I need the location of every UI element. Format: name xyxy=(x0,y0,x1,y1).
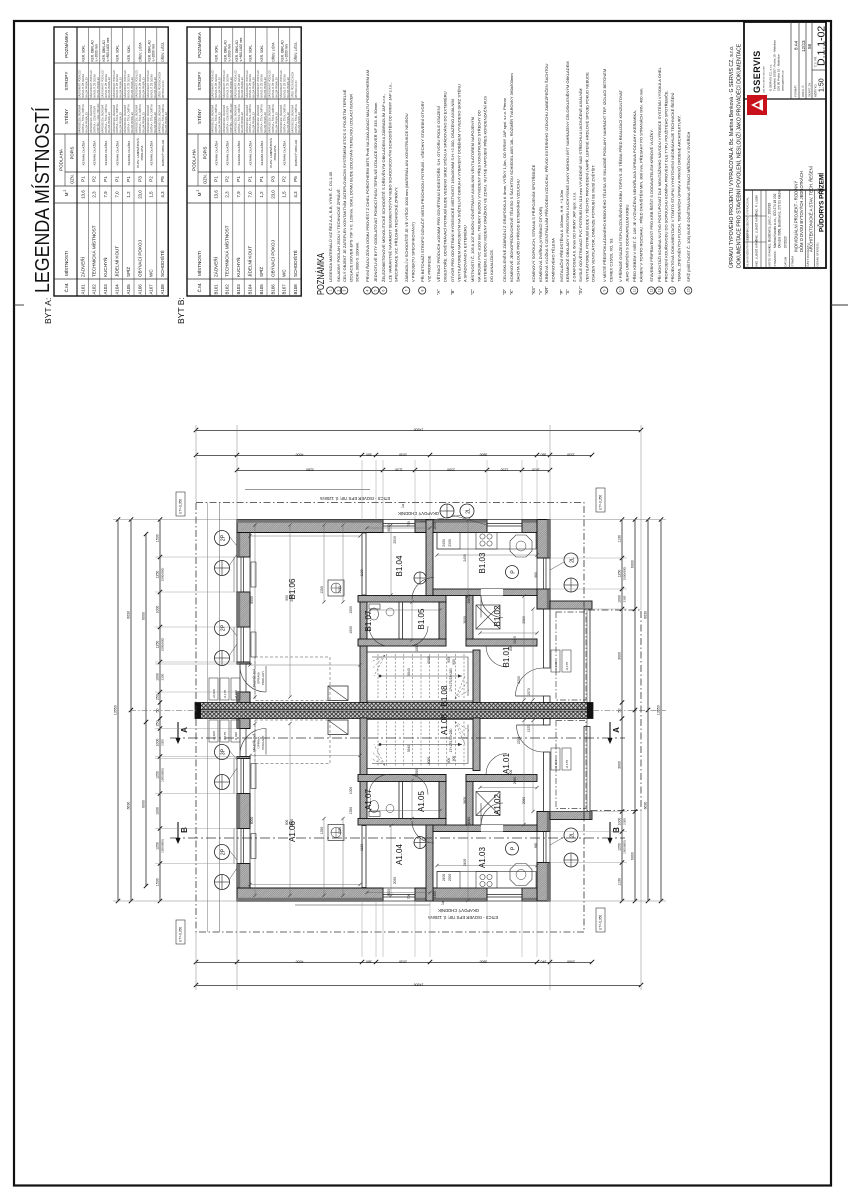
svg-text:A108: A108 xyxy=(160,284,165,295)
svg-text:B1.07: B1.07 xyxy=(364,610,373,631)
svg-text:A: A xyxy=(180,727,189,733)
svg-text:ZÁDVEŘÍ: ZÁDVEŘÍ xyxy=(78,256,85,277)
svg-text:MALBA PRIMALEX: MALBA PRIMALEX xyxy=(142,77,145,98)
svg-text:STAVEBNÍK:: STAVEBNÍK: xyxy=(773,250,777,266)
svg-text:900: 900 xyxy=(447,758,451,764)
svg-text:1,5: 1,5 xyxy=(282,191,287,198)
svg-text:PODLAHA: PODLAHA xyxy=(59,148,64,171)
svg-text:2400: 2400 xyxy=(442,539,446,547)
svg-text:MALBA PRIMALEX: MALBA PRIMALEX xyxy=(97,77,100,98)
svg-text:B1.04: B1.04 xyxy=(395,555,404,576)
svg-text:NA ROURU PVC ø100 mm. TRUBKY B: NA ROURU PVC ø100 mm. TRUBKY BUDOU VYVED… xyxy=(476,110,481,282)
svg-text:Č.M.: Č.M. xyxy=(196,283,202,293)
svg-text:B1.02: B1.02 xyxy=(493,605,502,626)
svg-text:380: 380 xyxy=(541,453,547,457)
svg-text:2400: 2400 xyxy=(463,554,467,562)
svg-text:11: 11 xyxy=(633,289,637,293)
svg-text:TECHNICKÁ MÍSTNOST: TECHNICKÁ MÍSTNOST xyxy=(224,225,230,277)
svg-text:3600: 3600 xyxy=(463,797,467,805)
svg-text:PODLAHY: PODLAHY xyxy=(261,735,265,749)
svg-text:VENTILÁTOREM. POTRUBÍ BUDE V T: VENTILÁTOREM. POTRUBÍ BUDE V TĚCHTO PROV… xyxy=(584,72,589,282)
svg-text:P2: P2 xyxy=(92,176,97,182)
svg-text:WIPPRO GM 4F: WIPPRO GM 4F xyxy=(162,80,165,98)
svg-text:6000: 6000 xyxy=(250,596,254,604)
svg-text:ARCH. Č.: ARCH. Č. xyxy=(800,85,805,97)
svg-text:2030: 2030 xyxy=(393,536,397,544)
svg-text:1250: 1250 xyxy=(156,842,160,850)
svg-text:ZÁBRADLÍ U SCHODIŠTĚ JE VE VÝŠ: ZÁBRADLÍ U SCHODIŠTĚ JE VE VÝŠCE 1000 mm… xyxy=(404,113,409,282)
svg-text:13,6: 13,6 xyxy=(80,190,85,199)
svg-text:KER. SOKL: KER. SOKL xyxy=(260,44,264,61)
svg-text:5280: 5280 xyxy=(306,468,314,472)
svg-text:STĚNY: STĚNY xyxy=(62,109,69,124)
svg-text:1350: 1350 xyxy=(320,586,324,594)
svg-text:MALBA PRIMALEX: MALBA PRIMALEX xyxy=(154,112,157,133)
svg-text:SVISLÉ ODVĚTRÁVACÍ PVC POTRUBÍ: SVISLÉ ODVĚTRÁVACÍ PVC POTRUBÍ DN 110 mm… xyxy=(578,89,583,282)
svg-text:KERAM. DLAŽBA: KERAM. DLAŽBA xyxy=(103,140,108,166)
svg-text:800: 800 xyxy=(509,645,513,651)
svg-text:9: 9 xyxy=(603,289,607,291)
svg-text:1350: 1350 xyxy=(320,827,324,835)
svg-text:POPIS: POPIS xyxy=(203,146,208,159)
svg-text:4: 4 xyxy=(366,289,370,291)
svg-text:380: 380 xyxy=(366,453,372,457)
svg-text:7,0: 7,0 xyxy=(248,191,253,198)
svg-text:2030: 2030 xyxy=(393,877,397,885)
svg-text:MALBA PRIMALEX: MALBA PRIMALEX xyxy=(275,112,278,133)
svg-text:3: 3 xyxy=(343,289,347,291)
svg-text:ING. LUBOŠ KÁNĚ: ING. LUBOŠ KÁNĚ xyxy=(754,214,759,241)
svg-text:PROJEKTOVÁ DOKUMENTACE V TOMTO: PROJEKTOVÁ DOKUMENTACE V TOMTO STUPNI VY… xyxy=(670,92,675,282)
svg-text:STĚNY: STĚNY xyxy=(195,109,202,124)
svg-text:15: 15 xyxy=(687,289,691,293)
svg-text:KERAM. DLAŽBA: KERAM. DLAŽBA xyxy=(213,140,218,166)
svg-text:B102: B102 xyxy=(225,284,230,295)
svg-text:STAVEBNÍ PŘIPRAVENOST PRO KRB: STAVEBNÍ PŘIPRAVENOST PRO KRB ŘEŠIT S DO… xyxy=(649,129,654,282)
svg-text:OSAZEN VENTILÁTOR, DIMENZE POT: OSAZEN VENTILÁTOR, DIMENZE POTRUBÍ SE MU… xyxy=(591,165,596,283)
svg-text:P1: P1 xyxy=(259,176,264,182)
svg-text:B: B xyxy=(180,827,189,833)
svg-text:KER. SOKL: KER. SOKL xyxy=(127,44,131,61)
svg-text:1: 1 xyxy=(329,289,333,291)
svg-text:1250: 1250 xyxy=(156,771,160,779)
svg-text:5940: 5940 xyxy=(407,745,411,753)
svg-text:1570: 1570 xyxy=(527,725,531,733)
svg-text:VIZ PROFESE: VIZ PROFESE xyxy=(426,255,431,282)
svg-text:"SV": "SV" xyxy=(578,286,583,295)
svg-text:8 A4: 8 A4 xyxy=(794,40,799,50)
svg-text:4500: 4500 xyxy=(296,960,304,964)
svg-text:MALBA PRIMALEX: MALBA PRIMALEX xyxy=(264,77,267,98)
svg-text:1130: 1130 xyxy=(618,878,622,886)
svg-text:14: 14 xyxy=(671,289,675,293)
svg-text:3000: 3000 xyxy=(618,652,622,660)
svg-text:2400: 2400 xyxy=(442,874,446,882)
svg-text:MALBA PRIMALEX: MALBA PRIMALEX xyxy=(253,112,256,133)
svg-text:KERAM. DLAŽBA: KERAM. DLAŽBA xyxy=(92,140,97,166)
svg-text:STROPY: STROPY xyxy=(64,72,69,91)
svg-text:2300: 2300 xyxy=(161,673,165,680)
svg-text:23,0: 23,0 xyxy=(137,190,142,199)
svg-text:B: B xyxy=(612,827,621,833)
svg-text:Okružní 3068, Budišovice, 272: Okružní 3068, Budišovice, 272 01 Kladno xyxy=(778,189,782,248)
svg-text:DOKUMENTACE PRO STAVEBNÍ POVOL: DOKUMENTACE PRO STAVEBNÍ POVOLENÍ, NESLO… xyxy=(735,43,743,268)
svg-text:10: 10 xyxy=(619,289,623,293)
svg-text:ÚPRAVU TYPOVÉHO PROJEKTU VYPRA: ÚPRAVU TYPOVÉHO PROJEKTU VYPRACOVALA: Bc… xyxy=(728,46,735,268)
svg-text:P1: P1 xyxy=(248,176,253,182)
svg-text:WC: WC xyxy=(149,269,154,277)
svg-text:A106: A106 xyxy=(137,284,142,295)
svg-text:3860: 3860 xyxy=(480,960,488,964)
svg-text:ETICS - ISOVER EPS 70F, tl. 12: ETICS - ISOVER EPS 70F, tl. 120mm xyxy=(427,915,498,920)
svg-text:1,2: 1,2 xyxy=(259,191,264,198)
svg-text:6000: 6000 xyxy=(631,852,635,860)
svg-text:1250: 1250 xyxy=(618,843,622,851)
svg-text:SPECIFIKACE VIZ. PŘÍLOHA TECHN: SPECIFIKACE VIZ. PŘÍLOHA TECHNICKÉ ZPRÁV… xyxy=(394,187,399,282)
svg-text:MALBA PRIMALEX: MALBA PRIMALEX xyxy=(131,77,134,98)
svg-text:ÚPRAVA: ÚPRAVA xyxy=(256,672,261,684)
svg-text:A101: A101 xyxy=(80,284,85,295)
svg-text:"KR": "KR" xyxy=(544,286,549,295)
svg-text:2050: 2050 xyxy=(513,777,517,785)
svg-text:2590: 2590 xyxy=(447,468,455,472)
svg-text:2060: 2060 xyxy=(522,616,526,624)
svg-text:KER. SOKL: KER. SOKL xyxy=(249,44,253,61)
svg-text:MALBA PRIMALEX: MALBA PRIMALEX xyxy=(298,112,301,133)
svg-text:700: 700 xyxy=(407,894,411,900)
svg-text:M: M xyxy=(64,192,69,196)
svg-text:KUCHYŇ: KUCHYŇ xyxy=(235,258,241,277)
svg-text:VĚTRACÍ PRŮDUCH ø150MM PRO ODV: VĚTRACÍ PRŮDUCH ø150MM PRO ODVĚTRÁNÍ DIG… xyxy=(436,105,441,282)
svg-text:KOMÍNOVÁ DVÍŘKA (VYBÍRACÍ OTVO: KOMÍNOVÁ DVÍŘKA (VYBÍRACÍ OTVOR) xyxy=(538,206,543,282)
svg-text:ETICS - ISOVER EPS 70F, tl. 12: ETICS - ISOVER EPS 70F, tl. 120mm xyxy=(319,496,390,501)
svg-text:1,5: 1,5 xyxy=(149,191,154,198)
svg-text:A1.04: A1.04 xyxy=(395,843,404,864)
svg-text:B107: B107 xyxy=(282,284,287,295)
svg-text:P1: P1 xyxy=(103,176,108,182)
svg-text:MALBA PRIMALEX: MALBA PRIMALEX xyxy=(131,112,134,133)
svg-text:B101: B101 xyxy=(213,284,218,295)
svg-text:58: 58 xyxy=(807,43,812,49)
svg-text:ARCHITEKTONICKÉ A STAV. TECH.: ARCHITEKTONICKÉ A STAV. TECH. ŘEŠENÍ xyxy=(809,165,814,252)
svg-text:OKAPOVÝ CHODNÍK: OKAPOVÝ CHODNÍK xyxy=(438,908,479,913)
svg-text:MĚŘÍTKO: MĚŘÍTKO xyxy=(813,83,818,97)
svg-text:5940: 5940 xyxy=(407,668,411,676)
svg-text:2030: 2030 xyxy=(399,453,407,457)
svg-text:1000: 1000 xyxy=(156,606,160,614)
svg-text:DATUM: DATUM xyxy=(784,256,788,266)
svg-text:-0,175: -0,175 xyxy=(565,662,569,671)
svg-text:A1.05: A1.05 xyxy=(417,790,426,811)
svg-text:ZODP. PROJEKTANT: ZODP. PROJEKTANT xyxy=(745,215,749,241)
svg-text:DŘEV. LIŠTA: DŘEV. LIŠTA xyxy=(293,42,298,62)
svg-text:P1: P1 xyxy=(213,176,218,182)
svg-text:STAVBA: STAVBA xyxy=(791,256,795,267)
svg-text:v.+2000 mm: v.+2000 mm xyxy=(228,44,232,62)
svg-text:6000: 6000 xyxy=(631,560,635,568)
svg-text:2P: 2P xyxy=(221,848,227,855)
svg-text:8: 8 xyxy=(421,289,425,291)
svg-text:2L: 2L xyxy=(570,832,576,838)
svg-text:KOMÍNOVÝ SOPOUCH, STRANA S PŘI: KOMÍNOVÝ SOPOUCH, STRANA S PŘIPOJENÍM SP… xyxy=(531,164,536,282)
svg-text:1a: 1a xyxy=(441,901,445,905)
svg-text:14300: 14300 xyxy=(414,983,424,987)
svg-text:B104: B104 xyxy=(248,284,253,295)
svg-text:FORMÁT: FORMÁT xyxy=(794,85,798,97)
svg-text:B1.03: B1.03 xyxy=(478,552,487,573)
svg-text:6630: 6630 xyxy=(127,802,131,810)
svg-text:17×173,53×280: 17×173,53×280 xyxy=(449,729,453,753)
svg-text:A: A xyxy=(612,727,621,733)
svg-text:13550: 13550 xyxy=(657,705,661,715)
svg-text:EXTERIÉRU. BUDOU VEDENY DRÁŽKO: EXTERIÉRU. BUDOU VEDENY DRÁŽKOU VE ZDIVU… xyxy=(483,96,488,282)
svg-text:2P: 2P xyxy=(221,624,227,631)
svg-text:7,0: 7,0 xyxy=(115,191,120,198)
svg-text:MÍSTNOSTI: MÍSTNOSTI xyxy=(63,251,69,276)
svg-text:KERAM. DLAŽBA: KERAM. DLAŽBA xyxy=(80,140,85,166)
svg-text:2060: 2060 xyxy=(522,797,526,805)
svg-text:1950: 1950 xyxy=(415,769,419,777)
svg-text:1250: 1250 xyxy=(156,571,160,579)
svg-text:NEHOŘLAVÁ: NEHOŘLAVÁ xyxy=(251,733,256,751)
svg-text:MALBA PRIMALEX: MALBA PRIMALEX xyxy=(108,112,111,133)
svg-text:PŘI BETONÁŽI STROPŮ OZNAČIT MÍ: PŘI BETONÁŽI STROPŮ OZNAČIT MÍSTA PRŮCHO… xyxy=(420,101,425,282)
svg-text:2: 2 xyxy=(196,190,200,192)
svg-text:MALBA PRIMALEX: MALBA PRIMALEX xyxy=(120,77,123,98)
svg-text:1350: 1350 xyxy=(338,586,342,594)
svg-text:PODLAHA: PODLAHA xyxy=(192,148,197,171)
svg-text:MALBA PRIMALEX: MALBA PRIMALEX xyxy=(264,112,267,133)
svg-text:ING. P. LUDÍK: ING. P. LUDÍK xyxy=(755,194,759,215)
svg-text:B1.05: B1.05 xyxy=(417,608,426,629)
svg-text:-0,175: -0,175 xyxy=(223,690,227,699)
svg-text:3000: 3000 xyxy=(618,761,622,769)
svg-text:1530: 1530 xyxy=(156,534,160,542)
svg-text:1130: 1130 xyxy=(395,468,403,472)
svg-text:13,6: 13,6 xyxy=(213,190,218,199)
svg-text:6000: 6000 xyxy=(427,757,431,765)
svg-text:6000: 6000 xyxy=(250,817,254,825)
svg-text:SOKL 3000 tl. 100mm.: SOKL 3000 tl. 100mm. xyxy=(355,242,360,282)
svg-text:9630: 9630 xyxy=(387,524,391,532)
svg-text:P5: P5 xyxy=(293,176,298,182)
svg-text:P3: P3 xyxy=(137,176,142,182)
svg-text:KERAM. DLAŽBA: KERAM. DLAŽBA xyxy=(236,140,241,166)
svg-text:v.+2000 mm: v.+2000 mm xyxy=(95,44,99,62)
svg-text:OBÝVACÍ POKOJ: OBÝVACÍ POKOJ xyxy=(136,240,142,277)
svg-text:KER. SOKL: KER. SOKL xyxy=(116,44,120,61)
svg-text:KÁMEN/ V TOMTO ROZSAHU : PŘED: KÁMEN/ V TOMTO ROZSAHU : PŘED OHNIŠTĚM M… xyxy=(638,88,643,282)
svg-text:MALBA PRIMALEX: MALBA PRIMALEX xyxy=(230,77,233,98)
svg-text:B108: B108 xyxy=(293,284,298,295)
svg-text:2050: 2050 xyxy=(290,594,294,602)
svg-text:KER. SOKL: KER. SOKL xyxy=(214,44,218,61)
svg-text:v.+2000 mm: v.+2000 mm xyxy=(285,44,289,62)
svg-text:BYT B:: BYT B: xyxy=(176,297,186,324)
svg-text:P3: P3 xyxy=(270,176,275,182)
svg-text:P2: P2 xyxy=(225,176,230,182)
svg-text:v.+2000 mm: v.+2000 mm xyxy=(152,44,156,62)
svg-text:MALBA PRIMALEX: MALBA PRIMALEX xyxy=(287,77,290,98)
svg-text:KERAM. DLAŽBA: KERAM. DLAŽBA xyxy=(126,140,131,166)
svg-text:1000: 1000 xyxy=(156,807,160,815)
svg-text:CEMEX C16/20, XO, S3.: CEMEX C16/20, XO, S3. xyxy=(608,238,613,282)
svg-text:MALBA PRIMALEX: MALBA PRIMALEX xyxy=(85,77,88,98)
svg-text:3600: 3600 xyxy=(463,616,467,624)
svg-text:P1: P1 xyxy=(126,176,131,182)
svg-text:1500(800): 1500(800) xyxy=(161,568,165,582)
svg-text:6: 6 xyxy=(382,289,386,291)
svg-text:POZNÁMKA: POZNÁMKA xyxy=(314,253,327,295)
svg-text:+0,020: +0,020 xyxy=(212,731,216,741)
svg-text:1500(800): 1500(800) xyxy=(161,768,165,782)
svg-text:MALBA PRIMALEX: MALBA PRIMALEX xyxy=(218,77,221,98)
svg-text:KRBOVÁ VLOŽKA S CENTRÁLNÍM PŘÍ: KRBOVÁ VLOŽKA S CENTRÁLNÍM PŘÍVODEM VZDU… xyxy=(544,63,549,282)
svg-text:PRVNÍ ŘADU ZDIVA DOMU PROVÉST: PRVNÍ ŘADU ZDIVA DOMU PROVÉST Z CIHEL PO… xyxy=(365,70,370,282)
svg-text:-0,020: -0,020 xyxy=(234,690,238,699)
svg-text:OBSAH VÝKRESU: OBSAH VÝKRESU xyxy=(816,243,820,267)
svg-text:-0,020: -0,020 xyxy=(554,662,558,671)
svg-text:JÍDELNÍ KOUT: JÍDELNÍ KOUT xyxy=(114,246,120,277)
svg-text:700: 700 xyxy=(407,521,411,527)
svg-text:1000: 1000 xyxy=(156,673,160,681)
svg-text:PŘI MONTÁŽI KOMÍNA NUTNO POSTU: PŘI MONTÁŽI KOMÍNA NUTNO POSTUPOVAT DLE … xyxy=(657,67,662,282)
svg-text:2060: 2060 xyxy=(467,817,471,825)
svg-text:7: 7 xyxy=(405,289,409,291)
svg-text:MALBA PRIMALEX: MALBA PRIMALEX xyxy=(108,77,111,98)
svg-text:JÍDELNÍ KOUT: JÍDELNÍ KOUT xyxy=(247,246,253,277)
svg-text:12: 12 xyxy=(650,289,654,293)
svg-text:WC: WC xyxy=(282,269,287,277)
svg-text:1550: 1550 xyxy=(349,807,353,815)
svg-text:TERAS, ZPEVNĚNÝCH PLOCH, TERÉN: TERAS, ZPEVNĚNÝCH PLOCH, TERÉNNÍCH ÚPRAV… xyxy=(676,115,681,282)
svg-text:14300: 14300 xyxy=(414,428,424,432)
svg-text:MÍSTNOSTI: MÍSTNOSTI xyxy=(196,251,202,276)
svg-text:SCHODIŠTĚ: SCHODIŠTĚ xyxy=(158,250,165,277)
svg-text:POZNÁMKA: POZNÁMKA xyxy=(63,31,69,58)
svg-text:6630: 6630 xyxy=(644,802,648,810)
svg-text:SPÍŽ: SPÍŽ xyxy=(257,267,264,277)
svg-text:KERAM. DLAŽBA: KERAM. DLAŽBA xyxy=(248,140,253,166)
svg-text:MALBA PRIMALEX: MALBA PRIMALEX xyxy=(142,112,145,133)
svg-text:3P: 3P xyxy=(221,748,227,755)
svg-text:1250: 1250 xyxy=(156,641,160,649)
svg-text:KERAM. DLAŽBA: KERAM. DLAŽBA xyxy=(282,140,287,166)
svg-text:4,3: 4,3 xyxy=(293,191,298,198)
svg-text:LZE VARIANTNĚ NAHRADIT SEGMENT: LZE VARIANTNĚ NAHRADIT SEGMENTOVÝM NEBO … xyxy=(387,83,392,282)
svg-text:1500(800): 1500(800) xyxy=(623,840,627,854)
svg-text:V PROJEKTU SPECIFIKOVÁNY): V PROJEKTU SPECIFIKOVÁNY) xyxy=(410,222,415,282)
svg-text:JEDNOTLIVÉ BYTY ODDILATOVAT PO: JEDNOTLIVÉ BYTY ODDILATOVAT POMOCÍ PÁSU … xyxy=(373,102,378,282)
svg-text:KUCHYŇ: KUCHYŇ xyxy=(102,258,108,277)
svg-text:1350: 1350 xyxy=(338,827,342,835)
svg-text:1120: 1120 xyxy=(360,844,364,851)
svg-text:5: 5 xyxy=(374,289,378,291)
svg-text:SKLADBY PODLAH JSOU V TECHNICK: SKLADBY PODLAH JSOU V TECHNICKÉ ZPRÁVĚ xyxy=(336,189,341,282)
svg-text:A SPÁDOVÁNO K EXTERIÉRU: A SPÁDOVÁNO K EXTERIÉRU xyxy=(463,225,468,282)
svg-text:MALBA PRIMALEX: MALBA PRIMALEX xyxy=(253,77,256,98)
svg-text:2060: 2060 xyxy=(467,596,471,604)
svg-text:Z GRAFOSKLA tl. 6mm OD FIRMY J: Z GRAFOSKLA tl. 6mm OD FIRMY JAP spol. s… xyxy=(571,192,576,282)
svg-text:250: 250 xyxy=(156,694,160,700)
svg-text:"B": "B" xyxy=(450,289,455,295)
svg-text:B1.08: B1.08 xyxy=(440,685,449,706)
svg-text:POZNÁMKA: POZNÁMKA xyxy=(196,31,202,58)
svg-text:KOMÍNOVÉ JEDNOPRŮDUCHOVÉ TĚLES: KOMÍNOVÉ JEDNOPRŮDUCHOVÉ TĚLESO S ŠACHTO… xyxy=(509,73,514,282)
svg-text:P2: P2 xyxy=(282,176,287,182)
svg-text:POPIS: POPIS xyxy=(70,146,75,159)
svg-text:1000: 1000 xyxy=(349,787,353,795)
svg-text:B103: B103 xyxy=(236,284,241,295)
svg-text:PODLAHA: PODLAHA xyxy=(273,145,277,161)
svg-text:IZOLACE ISOVER EPS 70F V tl. 1: IZOLACE ISOVER EPS 70F V tl. 120mm. SOKL… xyxy=(348,94,353,282)
svg-text:LEGENDA MÍSTNOSTÍ: LEGENDA MÍSTNOSTÍ xyxy=(31,107,54,293)
svg-text:"S": "S" xyxy=(565,289,570,295)
svg-text:1650: 1650 xyxy=(433,522,437,530)
svg-text:A1.07: A1.07 xyxy=(364,788,373,809)
svg-text:1000: 1000 xyxy=(349,626,353,634)
svg-text:MALBA PRIMALEX: MALBA PRIMALEX xyxy=(241,77,244,98)
svg-text:ŠACHTA SLOUŽÍ PRO PŘÍVOD EXTER: ŠACHTA SLOUŽÍ PRO PŘÍVOD EXTERNÍHO VZDUC… xyxy=(515,179,520,282)
svg-text:P5: P5 xyxy=(160,176,165,182)
svg-text:6630: 6630 xyxy=(127,611,131,619)
svg-text:GSERVIS: GSERVIS xyxy=(752,50,762,93)
svg-text:13550: 13550 xyxy=(114,705,118,715)
svg-text:"A": "A" xyxy=(436,289,441,295)
svg-text:MALBA PRIMALEX: MALBA PRIMALEX xyxy=(241,112,244,133)
svg-text:2030: 2030 xyxy=(399,960,407,964)
svg-text:POSTŘIK + KER. OBKLAD: POSTŘIK + KER. OBKLAD xyxy=(230,103,233,132)
svg-text:9630: 9630 xyxy=(387,889,391,897)
svg-text:17×173,53×280: 17×173,53×280 xyxy=(449,668,453,692)
svg-text:1000: 1000 xyxy=(618,818,622,826)
svg-text:A1.02: A1.02 xyxy=(493,793,502,814)
svg-text:Martina Kusnko a.r.o., IČO 274: Martina Kusnko a.r.o., IČO 274 18 232 xyxy=(772,193,777,248)
svg-text:6630: 6630 xyxy=(644,611,648,619)
svg-text:2: 2 xyxy=(337,289,341,291)
svg-text:SPÍŽ (MÍSTNOST Č. 105) BUDE OD: SPÍŽ (MÍSTNOST Č. 105) BUDE ODVĚTRÁVÁNA … xyxy=(686,131,691,282)
svg-text:A1.03: A1.03 xyxy=(478,846,487,867)
svg-text:ING. LUBOŠ KÁNĚ: ING. LUBOŠ KÁNĚ xyxy=(754,240,759,267)
svg-text:VYPRACOVAL: VYPRACOVAL xyxy=(745,197,749,215)
svg-text:SKART. ZN.: SKART. ZN. xyxy=(808,82,812,97)
svg-text:KERAM. DLAŽBA: KERAM. DLAŽBA xyxy=(115,140,120,166)
svg-text:CELÝ OBJEKT JE ZATEPLEN KONTAK: CELÝ OBJEKT JE ZATEPLEN KONTAKTNÍM ZATEP… xyxy=(342,89,347,282)
svg-text:2060: 2060 xyxy=(567,960,575,964)
svg-text:MALBA PRIMALEX: MALBA PRIMALEX xyxy=(154,77,157,98)
svg-text:23,0: 23,0 xyxy=(270,190,275,199)
svg-text:"C": "C" xyxy=(470,288,475,295)
svg-text:Č.M.: Č.M. xyxy=(63,283,69,293)
svg-text:P1: P1 xyxy=(80,176,85,182)
svg-text:12/23: 12/23 xyxy=(801,40,806,52)
svg-text:13: 13 xyxy=(658,289,662,293)
svg-text:VÁŠ PROJEKČNÍ ATELIÉR: VÁŠ PROJEKČNÍ ATELIÉR xyxy=(763,66,766,93)
svg-text:07/2023: 07/2023 xyxy=(784,236,788,248)
svg-text:DŘEV. LIŠTA: DŘEV. LIŠTA xyxy=(160,42,165,62)
svg-text:-0,020: -0,020 xyxy=(234,732,238,741)
svg-text:2050: 2050 xyxy=(290,819,294,827)
svg-text:MALBA PRIMALEX: MALBA PRIMALEX xyxy=(275,77,278,98)
svg-text:1000: 1000 xyxy=(618,595,622,603)
svg-text:1a: 1a xyxy=(401,504,405,508)
svg-text:1:50: 1:50 xyxy=(819,78,826,92)
svg-text:v.+800-1400 mm: v.+800-1400 mm xyxy=(106,37,110,61)
svg-text:1250: 1250 xyxy=(501,468,509,472)
svg-text:P2: P2 xyxy=(149,176,154,182)
svg-text:k.ú. Budišovice, parc.č. 2063/: k.ú. Budišovice, parc.č. 2063/18 xyxy=(768,203,772,248)
svg-text:960: 960 xyxy=(534,843,538,849)
